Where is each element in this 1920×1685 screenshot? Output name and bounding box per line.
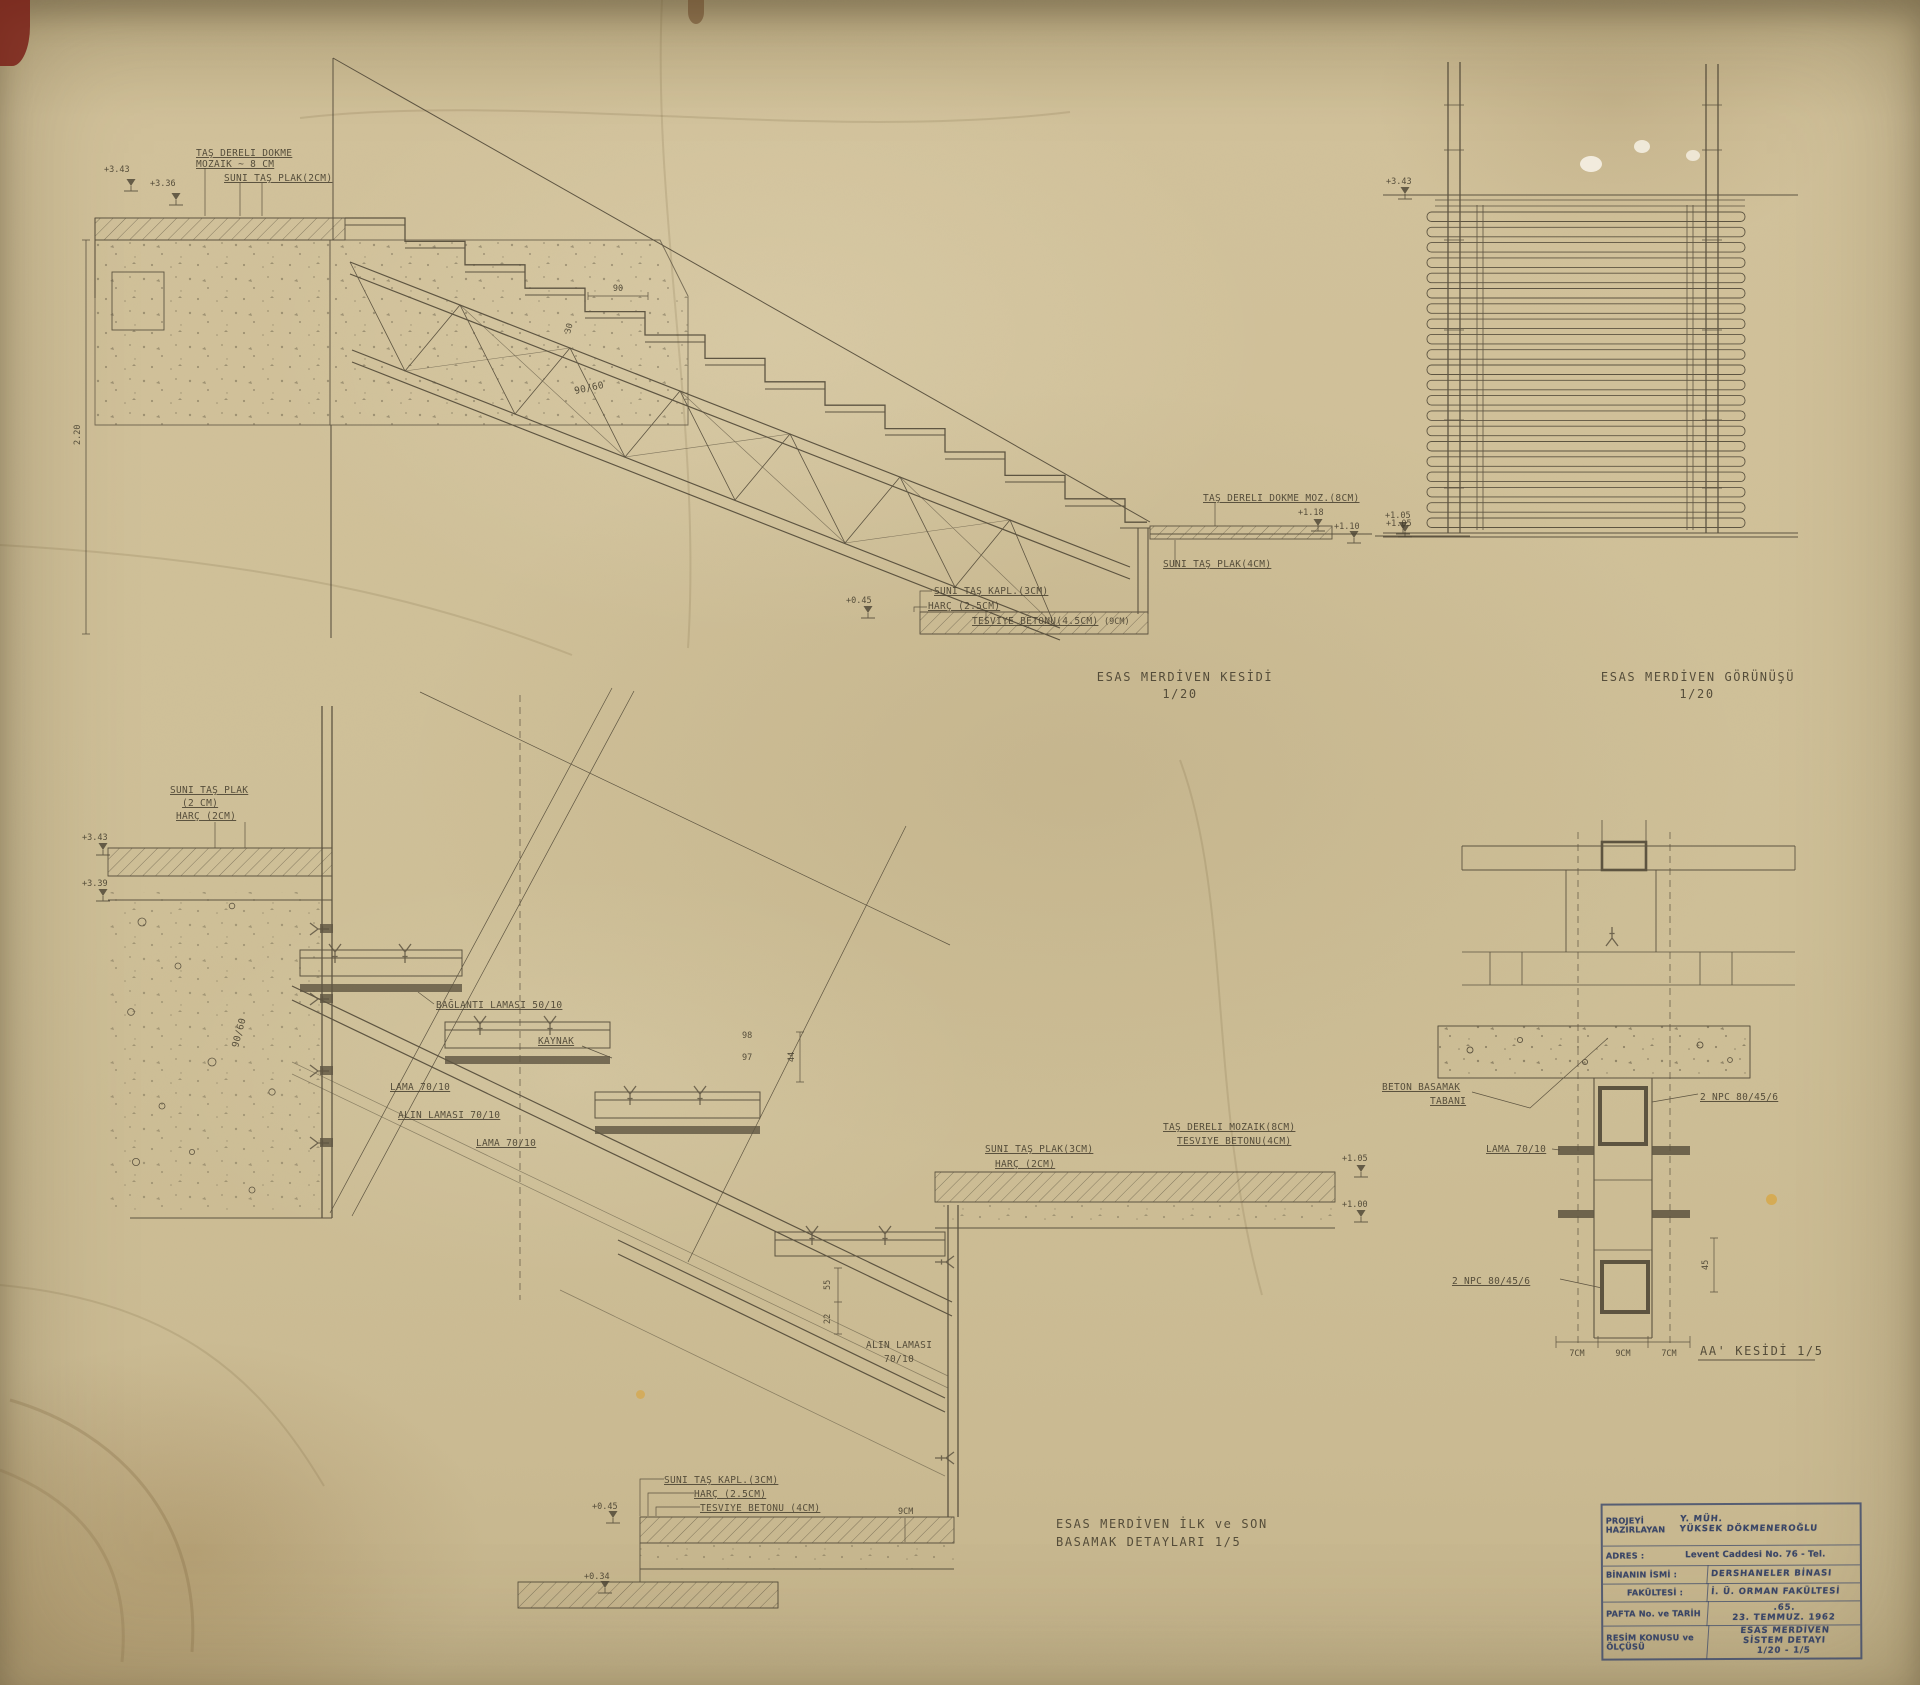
title-block-row-subject: RESİM KONUSU ve ÖLÇÜSÜ ESAS MERDİVEN SİS… (1603, 1624, 1860, 1658)
title-block: PROJEYİ HAZIRLAYAN Y. MÜH. YÜKSEK DÖKMEN… (1601, 1502, 1863, 1660)
address-value: Levent Caddesi No. 76 - Tel. (1651, 1544, 1860, 1566)
subject-scale: 1/20 - 1/5 (1756, 1647, 1810, 1657)
building-value: DERSHANELER BİNASI (1706, 1564, 1860, 1584)
dim-44: 44 (787, 1052, 797, 1062)
level-110: +1.10 (1334, 522, 1360, 532)
dim-9cm: 9CM (1615, 1349, 1630, 1359)
dim-97: 97 (742, 1053, 752, 1063)
label-9cm: (9CM) (1104, 617, 1130, 627)
label-tesv4-det: TESVİYE BETONU(4CM) (1177, 1136, 1291, 1147)
white-spot-3 (1686, 150, 1700, 161)
label-alin-lamasi-2a: ALIN LAMASI (866, 1340, 932, 1351)
preparer-label: PROJEYİ HAZIRLAYAN (1603, 1515, 1677, 1536)
label-det-plak2: (2 CM) (182, 798, 218, 809)
sheet-date-value: .65. 23. TEMMUZ. 1962 (1706, 1600, 1861, 1626)
label-alin-lamasi-2b: 70/10 (884, 1354, 914, 1365)
blueprint-page: { "paper": {"bg": "#cfc098", "ink": "#4a… (0, 0, 1920, 1685)
label-9cm-det: 9CM (898, 1507, 913, 1517)
dim-55: 55 (823, 1280, 833, 1290)
label-plak3cm-det: SUNİ TAŞ PLAK(3CM) (985, 1144, 1093, 1155)
label-baglanti-lamasi: BAĞLANTI LAMASI 50/10 (436, 999, 562, 1011)
address-label: ADRES : (1603, 1550, 1651, 1562)
label-harc2-det: HARÇ (2CM) (995, 1159, 1055, 1170)
white-spot-2 (1634, 140, 1650, 153)
label-harc25-det: HARÇ (2.5CM) (694, 1489, 766, 1500)
label-beton-basamak: BETON BASAMAK (1382, 1082, 1460, 1093)
dim-90: 90 (613, 284, 623, 294)
faculty-label: FAKÜLTESİ : (1603, 1587, 1707, 1599)
date-value: 23. TEMMUZ. 1962 (1732, 1613, 1836, 1623)
level-343-elev: +3.43 (1386, 177, 1412, 187)
label-lama-2: LAMA 70/10 (476, 1138, 536, 1149)
label-harc: HARÇ (2.5CM) (928, 601, 1000, 612)
dim-22: 22 (823, 1314, 833, 1324)
level-118: +1.18 (1298, 508, 1324, 518)
level-100-det: +1.00 (1342, 1200, 1368, 1210)
drawing-canvas: TAŞ DERELİ DÖKME MOZAİK ~ 8 CM SUNİ TAŞ … (0, 0, 1920, 1685)
level-105-det: +1.05 (1342, 1154, 1368, 1164)
elevation-caption-scale: 1/20 (1679, 687, 1714, 701)
level-045: +0.45 (846, 596, 872, 606)
level-336: +3.36 (150, 179, 176, 189)
detail-caption-1: ESAS MERDİVEN İLK ve SON (1056, 1516, 1268, 1531)
title-block-row-faculty: FAKÜLTESİ : İ. Ü. ORMAN FAKÜLTESİ (1603, 1582, 1860, 1601)
elevation-caption: ESAS MERDİVEN GÖRÜNÜŞÜ (1601, 668, 1795, 684)
label-moz-8cm: TAŞ DERELİ DÖKME MOZ.(8CM) (1203, 493, 1360, 504)
title-block-row-preparer: PROJEYİ HAZIRLAYAN Y. MÜH. YÜKSEK DÖKMEN… (1603, 1504, 1860, 1545)
label-kapl3-det: SUNİ TAŞ KAPL.(3CM) (664, 1475, 778, 1486)
label-npc-bottom: 2 NPC 80/45/6 (1452, 1276, 1530, 1287)
label-lama-1: LAMA 70/10 (390, 1082, 450, 1093)
level-339-det: +3.39 (82, 879, 108, 889)
label-suni-tas-plak-4cm: SUNİ TAŞ PLAK(4CM) (1163, 559, 1271, 570)
section-caption-scale: 1/20 (1162, 687, 1197, 701)
dim-2-20: 2.20 (73, 425, 83, 445)
label-tesviye-betonu: TESVİYE BETONU(4.5CM) (972, 616, 1098, 627)
preparer-name: YÜKSEK DÖKMENEROĞLU (1679, 1524, 1857, 1535)
subject-label: RESİM KONUSU ve ÖLÇÜSÜ (1603, 1632, 1707, 1653)
top-edge-smudge (688, 0, 704, 24)
subject-value: ESAS MERDİVEN SİSTEM DETAYI 1/20 - 1/5 (1706, 1624, 1861, 1659)
label-alin-lamasi-1: ALIN LAMASI 70/10 (398, 1110, 500, 1121)
label-det-plak1: SUNİ TAŞ PLAK (170, 785, 248, 796)
label-tas-dereli-dokme: TAŞ DERELİ DÖKME (196, 148, 292, 159)
label-mozaik-8cm: MOZAİK ~ 8 CM (196, 159, 274, 170)
level-343-det: +3.43 (82, 833, 108, 843)
preparer-value: Y. MÜH. YÜKSEK DÖKMENEROĞLU (1675, 1503, 1861, 1546)
white-spot-1 (1580, 156, 1602, 172)
detail-caption-2: BASAMAK DETAYLARI 1/5 (1056, 1535, 1241, 1549)
label-suni-tas-plak-2cm: SUNİ TAŞ PLAK(2CM) (224, 173, 332, 184)
dim-45: 45 (1701, 1260, 1711, 1270)
title-block-row-building: BİNANIN İSMİ : DERSHANELER BİNASI (1603, 1564, 1860, 1583)
building-label: BİNANIN İSMİ : (1603, 1569, 1707, 1581)
title-block-row-sheet-date: PAFTA No. ve TARİH .65. 23. TEMMUZ. 1962 (1603, 1600, 1860, 1625)
level-045-det: +0.45 (592, 1502, 618, 1512)
label-det-plak3: HARÇ (2CM) (176, 811, 236, 822)
label-npc-top: 2 NPC 80/45/6 (1700, 1092, 1778, 1103)
level-034-det: +0.34 (584, 1572, 610, 1582)
level-343: +3.43 (104, 165, 130, 175)
label-moz8-det: TAŞ DERELİ MOZAİK(8CM) (1163, 1122, 1295, 1133)
faculty-value: İ. Ü. ORMAN FAKÜLTESİ (1706, 1582, 1860, 1602)
label-beton-tabani: TABANI (1430, 1096, 1466, 1107)
yellow-spot-1 (1766, 1194, 1777, 1205)
sheet-date-label: PAFTA No. ve TARİH (1603, 1608, 1707, 1620)
label-kaynak: KAYNAK (538, 1036, 574, 1047)
yellow-spot-2 (636, 1390, 645, 1399)
section-caption: ESAS MERDİVEN KESİDİ (1097, 669, 1274, 684)
label-tesv45-det: TESVİYE BETONU (4CM) (700, 1503, 820, 1514)
dim-7cm-b: 7CM (1661, 1349, 1676, 1359)
label-lama-aa: LAMA 70/10 (1486, 1144, 1546, 1155)
dim-98: 98 (742, 1031, 752, 1041)
title-block-row-address: ADRES : Levent Caddesi No. 76 - Tel. (1603, 1544, 1860, 1565)
aa-caption: AA' KESİDİ 1/5 (1700, 1343, 1824, 1358)
dim-7cm-a: 7CM (1569, 1349, 1584, 1359)
label-suni-tas-kapl: SUNİ TAŞ KAPL.(3CM) (934, 586, 1048, 597)
